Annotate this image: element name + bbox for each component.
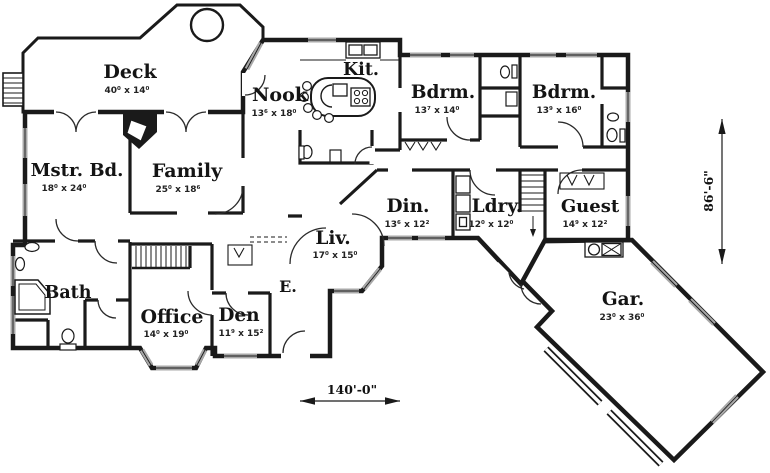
room-label-bedroom2: Bdrm. [532,82,596,103]
depth-dimension-arrow: 86'-6" [701,119,726,264]
room-dims-guest: 14⁹ x 12² [562,220,607,230]
room-label-dining: Din. [387,196,430,217]
room-label-den: Den [218,305,260,326]
room-label-family: Family [152,160,223,182]
hot-tub-icon [191,9,223,41]
room-dims-garage: 23⁰ x 36⁰ [599,313,644,323]
room-label-guest: Guest [561,196,620,217]
room-dims-laundry: 12⁰ x 12⁰ [468,220,513,230]
room-dims-family: 25⁰ x 18⁶ [155,185,200,195]
floor-plan-drawing: Deck 40⁰ x 14⁰ Nook 13⁶ x 18⁰ Kit. Bdrm.… [0,0,770,473]
width-dimension-label: 140'-0" [327,382,377,397]
room-label-bath: Bath [45,283,92,303]
room-label-deck: Deck [103,61,157,83]
deck-stairs-icon [3,73,23,106]
room-label-laundry: Ldry. [472,196,523,217]
room-label-kitchen: Kit. [343,60,379,80]
room-dims-dining: 13⁶ x 12² [384,220,429,230]
lower-staircase-icon [132,246,190,268]
room-dims-den: 11⁹ x 15² [218,329,263,339]
room-label-garage: Gar. [602,289,644,310]
utility-area-icon [585,242,623,257]
room-dims-deck: 40⁰ x 14⁰ [104,86,149,96]
room-label-entry: E. [279,277,297,296]
floor-plan-page: Deck 40⁰ x 14⁰ Nook 13⁶ x 18⁰ Kit. Bdrm.… [0,0,770,473]
room-label-bedroom1: Bdrm. [411,82,475,103]
room-dims-nook: 13⁶ x 18⁰ [251,109,296,119]
room-label-living: Liv. [315,228,350,249]
room-label-master: Mstr. Bd. [31,160,124,181]
room-label-nook: Nook [252,84,309,106]
room-dims-master: 18⁰ x 24⁰ [41,184,86,194]
room-dims-bedroom2: 13⁹ x 16⁰ [536,106,581,116]
room-dims-office: 14⁰ x 19⁰ [143,330,188,340]
room-dims-living: 17⁰ x 15⁰ [312,251,357,261]
room-label-office: Office [140,306,203,328]
toilet-icon [60,329,76,350]
width-dimension-arrow: 140'-0" [300,382,400,405]
range-icon [351,88,370,106]
depth-dimension-label: 86'-6" [701,170,716,212]
room-dims-bedroom1: 13⁷ x 14⁰ [414,106,459,116]
